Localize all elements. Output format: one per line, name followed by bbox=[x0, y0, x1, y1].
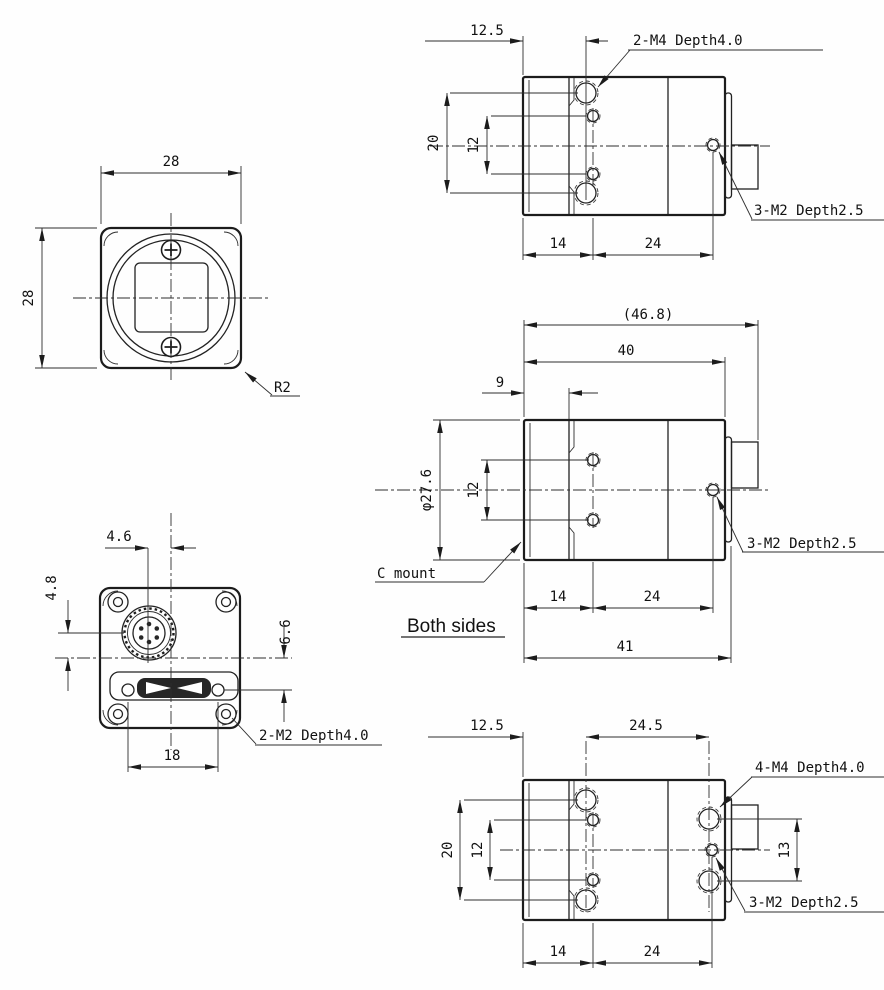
leader-m2 bbox=[717, 497, 743, 552]
dim-bottom-24_5: 24.5 bbox=[629, 718, 663, 734]
dim-rear-4_6: 4.6 bbox=[106, 529, 131, 545]
dim-top-24: 24 bbox=[645, 236, 662, 252]
dim-side-dia: φ27.6 bbox=[419, 469, 435, 511]
corner-arc bbox=[224, 350, 238, 364]
leader-m4 bbox=[598, 50, 630, 87]
rear-connector-block bbox=[732, 442, 759, 488]
dim-side-40: 40 bbox=[618, 343, 635, 359]
dim-bottom-20: 20 bbox=[440, 842, 456, 859]
dim-side-24: 24 bbox=[644, 589, 661, 605]
note-side-m2: 3-M2 Depth2.5 bbox=[747, 536, 857, 552]
dim-bottom-13: 13 bbox=[777, 842, 793, 859]
engineering-drawing-page: 28 28 R2 12.5 bbox=[0, 0, 884, 990]
note-corner-radius: R2 bbox=[274, 380, 291, 396]
dim-top-offset: 12.5 bbox=[470, 23, 504, 39]
sensor-window bbox=[135, 263, 208, 332]
note-bottom-m4: 4-M4 Depth4.0 bbox=[755, 760, 865, 776]
corner-arc bbox=[104, 350, 118, 364]
note-top-m4: 2-M4 Depth4.0 bbox=[633, 33, 743, 49]
rear-view: 4.6 4.8 6.6 18 2-M2 Depth4.0 bbox=[44, 513, 382, 772]
dim-rear-4_8: 4.8 bbox=[44, 575, 60, 600]
note-top-m2: 3-M2 Depth2.5 bbox=[754, 203, 864, 219]
rear-connector-block bbox=[732, 805, 759, 849]
dim-bottom-offset: 12.5 bbox=[470, 718, 504, 734]
corner-arc bbox=[224, 232, 238, 246]
usb-screw-hole bbox=[212, 684, 224, 696]
dim-side-41: 41 bbox=[617, 639, 634, 655]
camera-dimension-drawing: 28 28 R2 12.5 bbox=[0, 0, 884, 990]
corner-arc bbox=[104, 232, 118, 246]
usb-screw-hole bbox=[122, 684, 134, 696]
dim-bottom-12: 12 bbox=[470, 842, 486, 859]
dim-bottom-14: 14 bbox=[550, 944, 567, 960]
dim-side-overall: (46.8) bbox=[623, 307, 674, 323]
dim-side-9: 9 bbox=[496, 375, 504, 391]
corner-screw bbox=[216, 704, 236, 724]
dim-rear-6_6: 6.6 bbox=[278, 619, 294, 644]
dim-side-12: 12 bbox=[466, 482, 482, 499]
rear-connector-block bbox=[732, 145, 759, 189]
leader-m2 bbox=[232, 718, 256, 744]
corner-screw bbox=[108, 704, 128, 724]
bottom-view: 12.5 24.5 4-M4 Depth4.0 20 12 13 3-M2 De… bbox=[428, 718, 884, 968]
leader-c-mount bbox=[484, 542, 521, 582]
hirose-connector bbox=[122, 606, 176, 660]
dim-front-width: 28 bbox=[163, 154, 180, 170]
usb-connector bbox=[110, 672, 238, 700]
leader-r2 bbox=[245, 372, 272, 395]
m2-hole-rear bbox=[708, 140, 719, 151]
side-view: (46.8) 40 9 φ27.6 12 C mount Both sides … bbox=[375, 307, 884, 663]
note-rear-m2: 2-M2 Depth4.0 bbox=[259, 728, 369, 744]
dim-top-pitch20: 20 bbox=[426, 135, 442, 152]
corner-screw bbox=[108, 592, 128, 612]
note-both-sides: Both sides bbox=[407, 616, 496, 637]
dim-top-pitch12: 12 bbox=[466, 137, 482, 154]
dim-top-14: 14 bbox=[550, 236, 567, 252]
top-view: 12.5 2-M4 Depth4.0 20 12 3-M2 Depth2.5 1… bbox=[425, 23, 884, 260]
dim-bottom-24: 24 bbox=[644, 944, 661, 960]
dim-front-height: 28 bbox=[21, 290, 37, 307]
corner-screw bbox=[216, 592, 236, 612]
note-c-mount: C mount bbox=[377, 566, 436, 582]
dim-rear-18: 18 bbox=[164, 748, 181, 764]
front-view: 28 28 R2 bbox=[21, 154, 300, 396]
note-bottom-m2: 3-M2 Depth2.5 bbox=[749, 895, 859, 911]
dim-side-14: 14 bbox=[550, 589, 567, 605]
